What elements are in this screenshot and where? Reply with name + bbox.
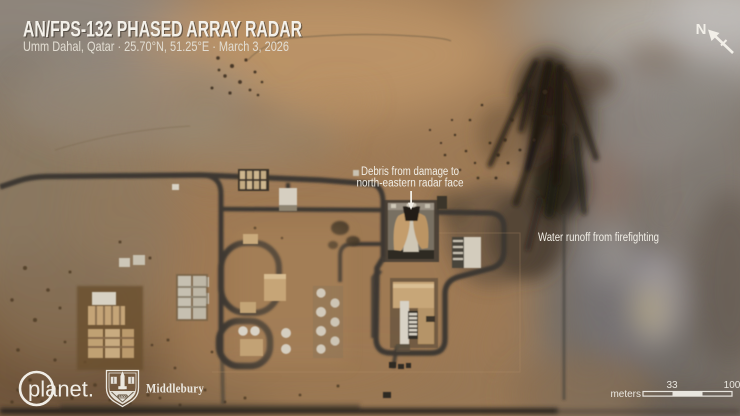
svg-text:north-eastern radar face: north-eastern radar face bbox=[357, 178, 464, 190]
svg-text:meters: meters bbox=[610, 389, 641, 400]
svg-text:Umm Dahal, Qatar · 25.70°N, 51: Umm Dahal, Qatar · 25.70°N, 51.25°E · Ma… bbox=[23, 38, 289, 54]
svg-text:N: N bbox=[696, 21, 707, 38]
svg-text:100: 100 bbox=[724, 380, 740, 391]
svg-text:33: 33 bbox=[666, 380, 678, 391]
svg-text:1800: 1800 bbox=[119, 395, 127, 399]
svg-text:Debris from damage to: Debris from damage to bbox=[361, 166, 459, 178]
svg-text:Water runoff from firefighting: Water runoff from firefighting bbox=[538, 232, 659, 244]
svg-text:Middlebury: Middlebury bbox=[146, 382, 204, 396]
svg-text:planet.: planet. bbox=[28, 377, 94, 402]
